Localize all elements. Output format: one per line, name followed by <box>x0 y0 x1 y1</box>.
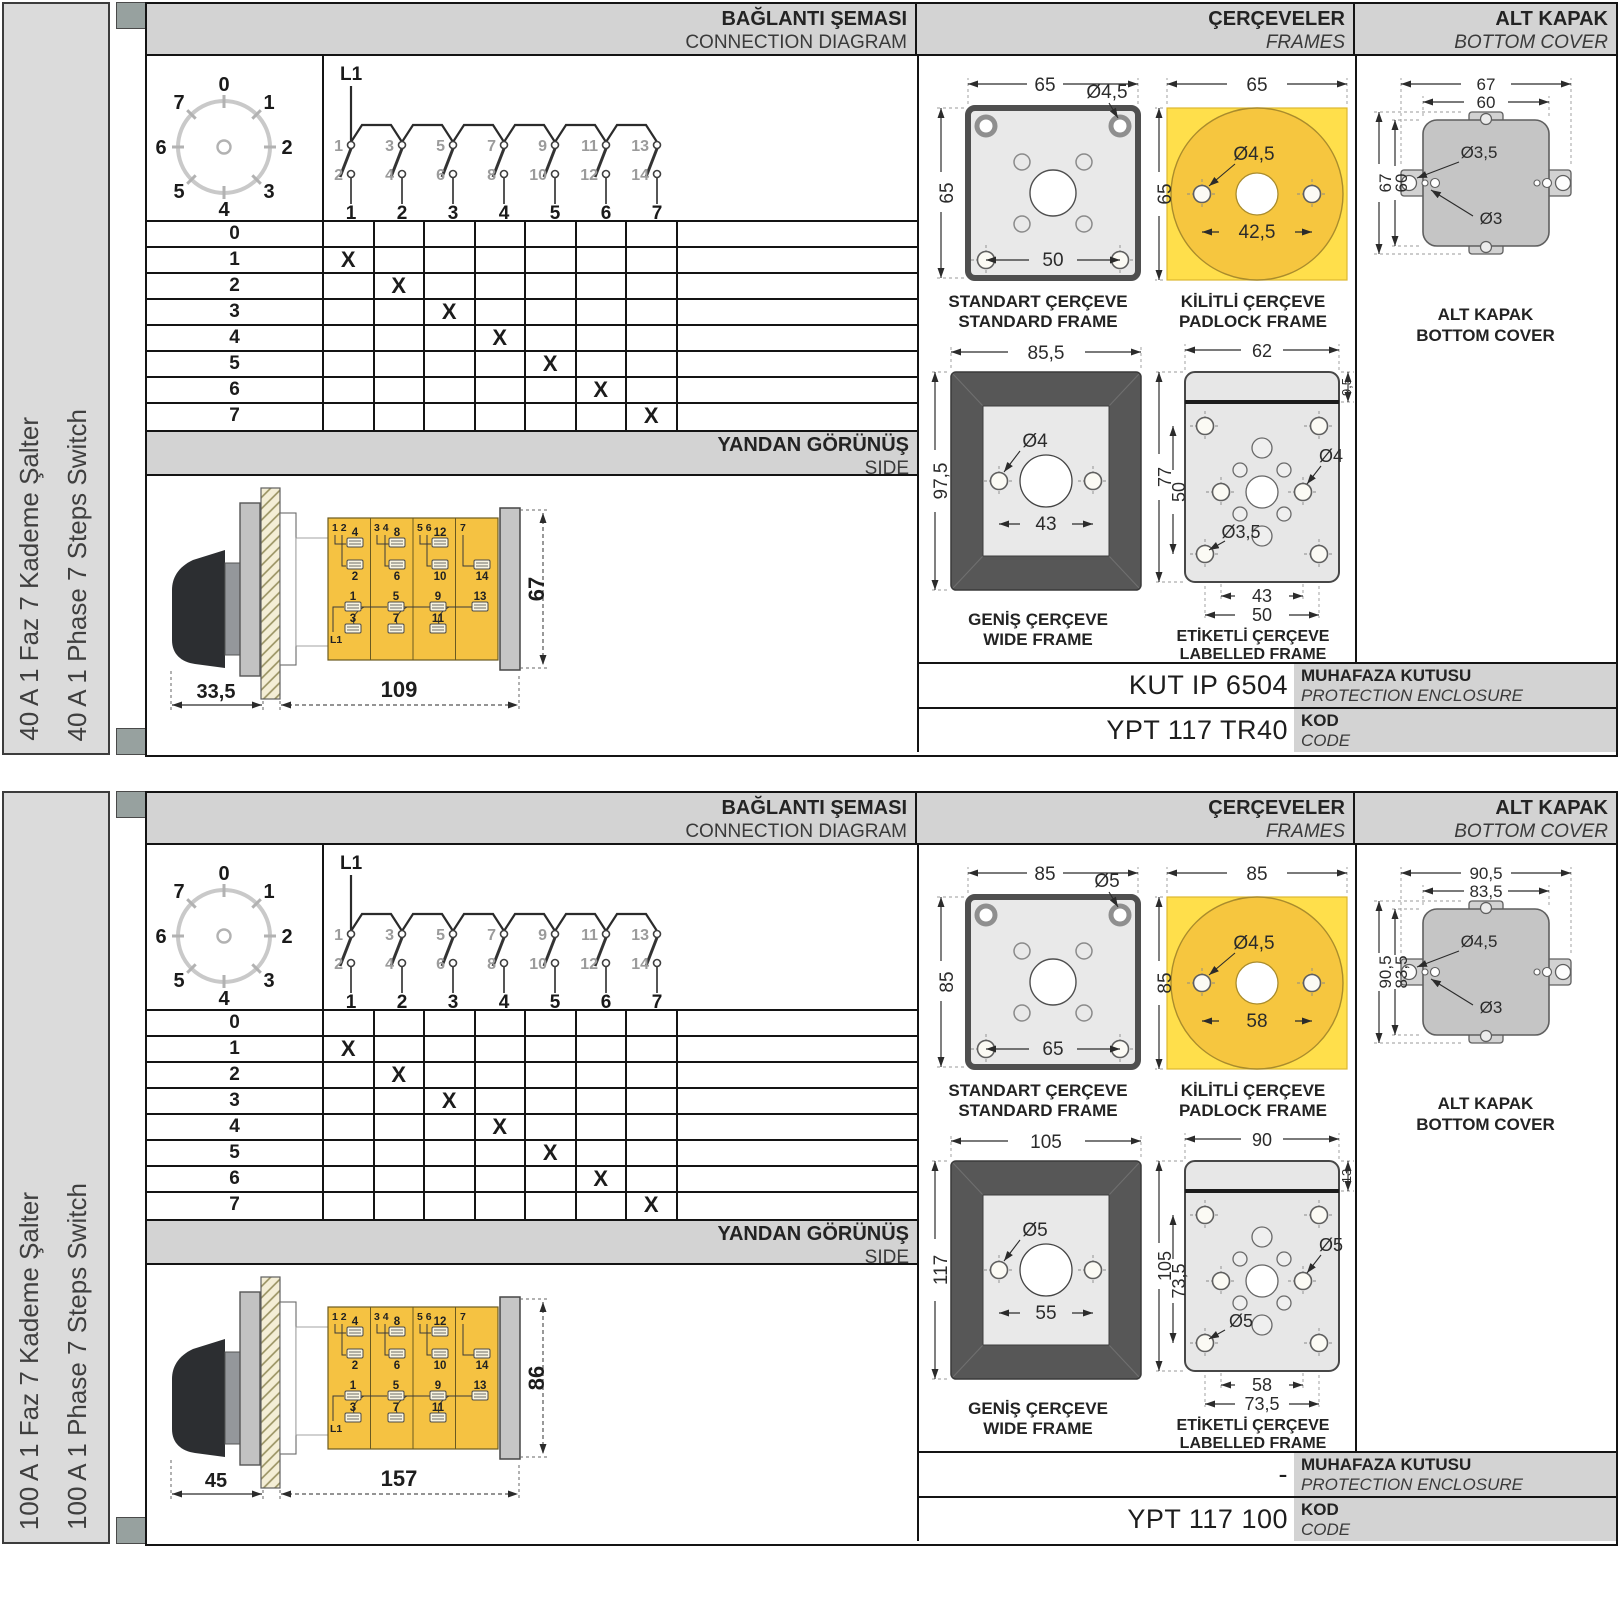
header-cover-tr: ALT KAPAK <box>1355 7 1608 31</box>
side-view-drawing: 1 2 3 4 5 6 7 L1 4 8 12 2 6 10 14 1 5 9 <box>153 1269 593 1525</box>
padlock-frame-drawing: 65 65 Ø4,5 42,5 <box>1151 60 1355 288</box>
bottom-cover-drawing: 90,5 83,5 90,5 83,5 Ø4,5 Ø3 <box>1361 853 1611 1091</box>
dim-cover-hole-tab: Ø4,5 <box>1461 932 1498 951</box>
dim-frame-width: 105 <box>1030 1132 1062 1153</box>
term-label: 1 <box>350 1380 357 1392</box>
product-section: 100 A 1 Faz 7 Kademe Şalter 100 A 1 Phas… <box>0 789 1623 1546</box>
col-top-label-4: 7 <box>460 1311 466 1323</box>
terminal-top-1: 1 <box>334 138 343 155</box>
header-frames-en: FRAMES <box>917 820 1345 843</box>
panel-plate-hatched <box>261 1277 280 1488</box>
dial-pos-0: 0 <box>218 74 229 96</box>
labelled-frame-label-tr: ETİKETLİ ÇERÇEVE <box>1149 628 1357 646</box>
padlock-frame-label: KİLİTLİ ÇERÇEVE PADLOCK FRAME <box>1151 292 1355 332</box>
dim-frame-height: 65 <box>937 182 958 203</box>
product-title-turkish: 100 A 1 Faz 7 Kademe Şalter <box>14 1192 45 1530</box>
enclosure-row: - MUHAFAZA KUTUSU PROTECTION ENCLOSURE <box>919 1451 1616 1496</box>
matrix-row: 0 <box>147 1011 917 1037</box>
header-connection-tr: BAĞLANTI ŞEMASI <box>147 796 907 820</box>
side-view-band-tr: YANDAN GÖRÜNÜŞ <box>147 433 909 457</box>
switch-handle <box>172 550 225 668</box>
dim-frame-width: 65 <box>1034 75 1055 96</box>
terminal-bottom-12: 12 <box>580 167 598 184</box>
enclosure-label-tr: MUHAFAZA KUTUSU <box>1301 666 1616 686</box>
matrix-row-label: 7 <box>147 404 324 430</box>
code-label-en: CODE <box>1301 1520 1616 1539</box>
term-label: 13 <box>474 1380 487 1392</box>
matrix-row-label: 2 <box>147 1063 324 1087</box>
supply-label: L1 <box>340 853 363 874</box>
dial-pos-4: 4 <box>218 988 230 1007</box>
matrix-x-mark: X <box>476 1115 527 1139</box>
dial-pos-5: 5 <box>173 970 184 992</box>
terminal-top-5: 5 <box>436 138 445 155</box>
matrix-x-mark: X <box>375 274 426 298</box>
dim-frame-hole-left: Ø3,5 <box>1221 522 1260 542</box>
dim-frame-height: 65 <box>1155 183 1176 204</box>
dim-frame-spacing: 43 <box>1035 514 1056 535</box>
dim-frame-inner-height: 50 <box>1169 482 1189 502</box>
datasheet-panel: BAĞLANTI ŞEMASI CONNECTION DIAGRAM ÇERÇE… <box>145 2 1618 757</box>
dim-frame-hole: Ø4,5 <box>1086 82 1127 103</box>
product-section: 40 A 1 Faz 7 Kademe Şalter 40 A 1 Phase … <box>0 0 1623 757</box>
matrix-row: 1X <box>147 248 917 274</box>
header-bottom-cover: ALT KAPAK BOTTOM COVER <box>1355 793 1616 845</box>
mounting-plate <box>240 503 260 676</box>
matrix-row: 6X <box>147 1167 917 1193</box>
dim-cover-inner-h: 83,5 <box>1392 955 1411 988</box>
col-top-label-1: 1 2 <box>332 522 347 534</box>
standard-frame-drawing: 85 Ø5 85 65 <box>923 849 1153 1077</box>
term-label: 4 <box>352 1316 359 1328</box>
term-label: 9 <box>435 591 441 603</box>
output-4: 4 <box>499 992 510 1009</box>
contact-schematic-cell: L1 <box>324 845 917 1009</box>
term-label: 2 <box>352 1360 358 1372</box>
dim-frame-width: 65 <box>1246 75 1267 96</box>
matrix-row: 5X <box>147 1141 917 1167</box>
term-label: 1 <box>350 591 357 603</box>
code-row: YPT 117 TR40 KOD CODE <box>919 707 1616 752</box>
matrix-row-label: 1 <box>147 1037 324 1061</box>
terminal-bottom-8: 8 <box>487 956 496 973</box>
term-label: 12 <box>434 1316 447 1328</box>
matrix-x-mark: X <box>425 300 476 324</box>
matrix-row-label: 4 <box>147 326 324 350</box>
terminal-top-1: 1 <box>334 927 343 944</box>
term-label: 7 <box>393 1402 399 1414</box>
terminal-top-11: 11 <box>581 138 598 155</box>
output-3: 3 <box>448 992 459 1009</box>
product-title-turkish: 40 A 1 Faz 7 Kademe Şalter <box>14 417 45 741</box>
bottom-cover-label: ALT KAPAK BOTTOM COVER <box>1355 1093 1616 1135</box>
side-view-band-en: SIDE <box>147 1246 909 1269</box>
matrix-x-mark: X <box>526 352 577 376</box>
header-connection-diagram: BAĞLANTI ŞEMASI CONNECTION DIAGRAM <box>147 4 917 56</box>
side-view-band: YANDAN GÖRÜNÜŞ SIDE <box>147 1219 917 1265</box>
terminal-bottom-6: 6 <box>436 167 445 184</box>
dim-frame-spacing-outer: 73,5 <box>1244 1394 1279 1414</box>
dial-cell: 0 1 2 3 4 5 6 7 <box>147 845 324 1009</box>
enclosure-label: MUHAFAZA KUTUSU PROTECTION ENCLOSURE <box>1294 1453 1616 1496</box>
terminal-top-13: 13 <box>631 927 649 944</box>
matrix-row: 4X <box>147 326 917 352</box>
padlock-frame-label-en: PADLOCK FRAME <box>1151 1101 1355 1121</box>
product-title-sidebar: 100 A 1 Faz 7 Kademe Şalter 100 A 1 Phas… <box>2 791 110 1544</box>
header-cover-en: BOTTOM COVER <box>1355 31 1608 54</box>
terminal-bottom-14: 14 <box>631 167 649 184</box>
term-label: 10 <box>434 1360 447 1372</box>
register-mark-bottom <box>116 1517 148 1544</box>
terminal-bottom-10: 10 <box>529 167 547 184</box>
matrix-row: 2X <box>147 274 917 300</box>
dim-frame-spacing: 50 <box>1042 250 1063 271</box>
dim-frame-width: 85,5 <box>1028 343 1065 364</box>
divider-connection-frames <box>917 845 919 1541</box>
dim-frame-spacing: 42,5 <box>1239 222 1276 243</box>
wide-frame-drawing: 105 117 Ø5 55 <box>923 1123 1153 1395</box>
dim-frame-width: 85 <box>1246 864 1267 885</box>
header-cover-tr: ALT KAPAK <box>1355 796 1608 820</box>
dial-pos-2: 2 <box>281 137 292 159</box>
term-label: 11 <box>432 1402 445 1414</box>
matrix-x-mark: X <box>577 1167 628 1191</box>
terminal-bottom-4: 4 <box>385 167 394 184</box>
enclosure-label-en: PROTECTION ENCLOSURE <box>1301 686 1616 705</box>
code-label-tr: KOD <box>1301 711 1616 731</box>
header-connection-tr: BAĞLANTI ŞEMASI <box>147 7 907 31</box>
term-label: 14 <box>476 1360 489 1372</box>
matrix-x-mark: X <box>375 1063 426 1087</box>
dim-frame-width: 62 <box>1252 341 1272 361</box>
output-2: 2 <box>397 992 408 1009</box>
col-top-label-1: 1 2 <box>332 1311 347 1323</box>
body-supply-label: L1 <box>330 1423 342 1435</box>
col-top-label-2: 3 4 <box>374 1311 389 1323</box>
side-view-band-en: SIDE <box>147 457 909 480</box>
matrix-row: 3X <box>147 300 917 326</box>
dial-pos-4: 4 <box>218 199 230 218</box>
rotary-dial-drawing: 0 1 2 3 4 5 6 7 <box>147 845 322 1007</box>
term-label: 5 <box>393 591 400 603</box>
header-frames-en: FRAMES <box>917 31 1345 54</box>
padlock-frame-label-en: PADLOCK FRAME <box>1151 312 1355 332</box>
labelled-frame-label-tr: ETİKETLİ ÇERÇEVE <box>1149 1417 1357 1435</box>
dim-frame-spacing: 58 <box>1246 1011 1267 1032</box>
dial-pos-6: 6 <box>155 926 166 948</box>
dim-frame-hole-left: Ø5 <box>1229 1311 1253 1331</box>
standard-frame-label: STANDART ÇERÇEVE STANDARD FRAME <box>923 292 1153 332</box>
standard-frame-label-en: STANDARD FRAME <box>923 1101 1153 1121</box>
dim-frame-spacing: 65 <box>1042 1039 1063 1060</box>
output-5: 5 <box>550 203 561 220</box>
code-value: YPT 117 TR40 <box>919 709 1294 752</box>
matrix-row-label: 0 <box>147 222 324 246</box>
dim-handle-depth: 45 <box>205 1470 227 1492</box>
matrix-row-label: 3 <box>147 1089 324 1113</box>
header-frames-tr: ÇERÇEVELER <box>917 7 1345 31</box>
enclosure-value: KUT IP 6504 <box>919 664 1294 707</box>
output-3: 3 <box>448 203 459 220</box>
output-7: 7 <box>652 203 663 220</box>
dial-pos-0: 0 <box>218 863 229 885</box>
terminal-bottom-6: 6 <box>436 956 445 973</box>
header-cover-en: BOTTOM COVER <box>1355 820 1608 843</box>
side-view-band-tr: YANDAN GÖRÜNÜŞ <box>147 1222 909 1246</box>
terminal-bottom-12: 12 <box>580 956 598 973</box>
matrix-row-label: 2 <box>147 274 324 298</box>
terminal-top-11: 11 <box>581 927 598 944</box>
standard-frame-label: STANDART ÇERÇEVE STANDARD FRAME <box>923 1081 1153 1121</box>
dim-frame-spacing-outer: 50 <box>1252 605 1272 625</box>
wide-frame-label-tr: GENİŞ ÇERÇEVE <box>923 1399 1153 1419</box>
matrix-row: 3X <box>147 1089 917 1115</box>
header-connection-en: CONNECTION DIAGRAM <box>147 820 907 843</box>
terminal-bottom-10: 10 <box>529 956 547 973</box>
contact-schematic-cell: L1 <box>324 56 917 220</box>
dim-body-height: 67 <box>524 577 549 601</box>
term-label: 3 <box>350 1402 356 1414</box>
dim-frame-width: 85 <box>1034 864 1055 885</box>
standard-frame-label-en: STANDARD FRAME <box>923 312 1153 332</box>
matrix-x-mark: X <box>324 1037 375 1061</box>
dim-frame-inner-height: 73,5 <box>1169 1263 1189 1298</box>
dim-frame-width: 90 <box>1252 1130 1272 1150</box>
wide-frame-label-en: WIDE FRAME <box>923 630 1153 650</box>
term-label: 13 <box>474 591 487 603</box>
matrix-x-mark: X <box>476 326 527 350</box>
end-cap <box>500 508 520 670</box>
term-label: 8 <box>394 527 401 539</box>
wide-frame-drawing: 85,5 97,5 Ø4 43 <box>923 334 1153 606</box>
bottom-cover-label-en: BOTTOM COVER <box>1355 325 1616 346</box>
dim-body-length: 109 <box>381 677 418 702</box>
side-view-cell: 1 2 3 4 5 6 7 L1 4 8 12 2 6 10 14 1 5 9 <box>153 1269 593 1530</box>
dim-cover-hole-tab: Ø3,5 <box>1461 143 1498 162</box>
dim-frame-strip: 13 <box>1339 1169 1354 1183</box>
body-supply-label: L1 <box>330 634 342 646</box>
matrix-row-label: 4 <box>147 1115 324 1139</box>
side-view-cell: 1 2 3 4 5 6 7 L1 4 8 12 2 6 10 14 1 5 9 <box>153 480 593 741</box>
padlock-frame-label: KİLİTLİ ÇERÇEVE PADLOCK FRAME <box>1151 1081 1355 1121</box>
standard-frame-drawing: 65 Ø4,5 65 50 <box>923 60 1153 288</box>
code-label: KOD CODE <box>1294 709 1616 752</box>
terminal-bottom-2: 2 <box>334 167 343 184</box>
matrix-row-label: 5 <box>147 352 324 376</box>
header-frames-tr: ÇERÇEVELER <box>917 796 1345 820</box>
term-label: 3 <box>350 613 356 625</box>
panel-plate-hatched <box>261 488 280 699</box>
term-label: 4 <box>352 527 359 539</box>
output-2: 2 <box>397 203 408 220</box>
register-mark-top <box>116 791 148 818</box>
dial-pos-3: 3 <box>263 181 274 203</box>
terminal-top-7: 7 <box>487 927 496 944</box>
dim-cover-hole-small: Ø3 <box>1480 998 1503 1017</box>
matrix-row-label: 7 <box>147 1193 324 1219</box>
output-5: 5 <box>550 992 561 1009</box>
matrix-row: 5X <box>147 352 917 378</box>
terminal-top-5: 5 <box>436 927 445 944</box>
matrix-row-label: 3 <box>147 300 324 324</box>
dim-frame-hole: Ø4,5 <box>1233 933 1274 954</box>
mounting-plate <box>240 1292 260 1465</box>
dim-cover-hole-small: Ø3 <box>1480 209 1503 228</box>
dim-frame-spacing-inner: 58 <box>1252 1375 1272 1395</box>
dial-pos-6: 6 <box>155 137 166 159</box>
enclosure-label: MUHAFAZA KUTUSU PROTECTION ENCLOSURE <box>1294 664 1616 707</box>
code-value: YPT 117 100 <box>919 1498 1294 1541</box>
product-title-sidebar: 40 A 1 Faz 7 Kademe Şalter 40 A 1 Phase … <box>2 2 110 755</box>
padlock-frame-label-tr: KİLİTLİ ÇERÇEVE <box>1151 1081 1355 1101</box>
output-4: 4 <box>499 203 510 220</box>
matrix-x-mark: X <box>425 1089 476 1113</box>
terminal-bottom-8: 8 <box>487 167 496 184</box>
contact-schematic-drawing: L1 <box>324 56 917 220</box>
enclosure-label-tr: MUHAFAZA KUTUSU <box>1301 1455 1616 1475</box>
dim-cover-outer-w: 67 <box>1477 75 1496 94</box>
term-label: 11 <box>432 613 445 625</box>
header-connection-en: CONNECTION DIAGRAM <box>147 31 907 54</box>
dial-pos-1: 1 <box>263 92 274 114</box>
output-6: 6 <box>601 992 612 1009</box>
padlock-frame-drawing: 85 85 Ø4,5 58 <box>1151 849 1355 1077</box>
output-7: 7 <box>652 992 663 1009</box>
header-bottom-cover: ALT KAPAK BOTTOM COVER <box>1355 4 1616 56</box>
dial-pos-3: 3 <box>263 970 274 992</box>
dim-body-length: 157 <box>381 1466 418 1491</box>
col-top-label-3: 5 6 <box>417 1311 432 1323</box>
code-label-en: CODE <box>1301 731 1616 750</box>
term-label: 10 <box>434 571 447 583</box>
matrix-row: 4X <box>147 1115 917 1141</box>
matrix-row: 7X <box>147 1193 917 1219</box>
enclosure-value: - <box>919 1453 1294 1496</box>
dim-frame-height: 85 <box>1155 972 1176 993</box>
contact-schematic-drawing: L1 <box>324 845 917 1009</box>
enclosure-row: KUT IP 6504 MUHAFAZA KUTUSU PROTECTION E… <box>919 662 1616 707</box>
code-row: YPT 117 100 KOD CODE <box>919 1496 1616 1541</box>
matrix-x-mark: X <box>526 1141 577 1165</box>
code-label: KOD CODE <box>1294 1498 1616 1541</box>
matrix-row-label: 5 <box>147 1141 324 1165</box>
register-mark-top <box>116 2 148 29</box>
dim-cover-inner-h: 60 <box>1392 174 1411 193</box>
labelled-frame-label: ETİKETLİ ÇERÇEVE LABELLED FRAME <box>1149 628 1357 664</box>
terminal-top-7: 7 <box>487 138 496 155</box>
term-label: 6 <box>394 1360 400 1372</box>
dial-pos-5: 5 <box>173 181 184 203</box>
dim-frame-spacing: 55 <box>1035 1303 1056 1324</box>
wide-frame-label: GENİŞ ÇERÇEVE WIDE FRAME <box>923 610 1153 650</box>
dim-frame-height: 117 <box>931 1255 952 1285</box>
wide-frame-label-en: WIDE FRAME <box>923 1419 1153 1439</box>
dial-pos-1: 1 <box>263 881 274 903</box>
dial-pos-7: 7 <box>173 92 184 114</box>
term-label: 2 <box>352 571 358 583</box>
dial-cell: 0 1 2 3 4 5 6 7 <box>147 56 324 220</box>
term-label: 9 <box>435 1380 441 1392</box>
term-label: 8 <box>394 1316 401 1328</box>
matrix-row: 2X <box>147 1063 917 1089</box>
dim-frame-height: 85 <box>937 971 958 992</box>
term-label: 6 <box>394 571 400 583</box>
dim-frame-hole: Ø5 <box>1094 871 1119 892</box>
wide-frame-label-tr: GENİŞ ÇERÇEVE <box>923 610 1153 630</box>
bottom-cover-drawing: 67 60 67 60 Ø3,5 Ø3 <box>1361 64 1611 302</box>
matrix-row-label: 6 <box>147 1167 324 1191</box>
dim-frame-strip: 9,5 <box>1339 378 1354 396</box>
terminal-top-3: 3 <box>385 138 394 155</box>
bottom-cover-label-tr: ALT KAPAK <box>1355 1093 1616 1114</box>
matrix-row: 7X <box>147 404 917 430</box>
col-top-label-2: 3 4 <box>374 522 389 534</box>
side-view-band: YANDAN GÖRÜNÜŞ SIDE <box>147 430 917 476</box>
terminal-bottom-14: 14 <box>631 956 649 973</box>
dim-frame-hole-right: Ø4 <box>1319 446 1343 466</box>
matrix-x-mark: X <box>324 248 375 272</box>
catalog-page: 40 A 1 Faz 7 Kademe Şalter 40 A 1 Phase … <box>0 0 1623 1546</box>
term-label: 12 <box>434 527 447 539</box>
labelled-frame-drawing: 62 9,5 77 50 Ø4 Ø3,5 43 50 <box>1149 334 1357 626</box>
matrix-row: 0 <box>147 222 917 248</box>
rotary-dial-drawing: 0 1 2 3 4 5 6 7 <box>147 56 322 218</box>
dim-frame-hole: Ø5 <box>1022 1220 1047 1241</box>
dim-frame-spacing-inner: 43 <box>1252 586 1272 606</box>
terminal-bottom-4: 4 <box>385 956 394 973</box>
code-label-tr: KOD <box>1301 1500 1616 1520</box>
datasheet-panel: BAĞLANTI ŞEMASI CONNECTION DIAGRAM ÇERÇE… <box>145 791 1618 1546</box>
output-1: 1 <box>346 992 357 1009</box>
output-6: 6 <box>601 203 612 220</box>
terminal-top-9: 9 <box>538 927 547 944</box>
col-top-label-3: 5 6 <box>417 522 432 534</box>
matrix-row: 6X <box>147 378 917 404</box>
dim-handle-depth: 33,5 <box>197 681 236 703</box>
labelled-frame-label: ETİKETLİ ÇERÇEVE LABELLED FRAME <box>1149 1417 1357 1453</box>
matrix-x-mark: X <box>627 1193 678 1219</box>
terminal-top-13: 13 <box>631 138 649 155</box>
term-label: 14 <box>476 571 489 583</box>
switching-matrix-table: 0 1X 2X 3X 4X 5X 6X 7X <box>147 220 917 430</box>
matrix-x-mark: X <box>577 378 628 402</box>
bottom-cover-label-en: BOTTOM COVER <box>1355 1114 1616 1135</box>
term-label: 5 <box>393 1380 400 1392</box>
dim-cover-outer-w: 90,5 <box>1469 864 1502 883</box>
divider-connection-frames <box>917 56 919 752</box>
terminal-bottom-2: 2 <box>334 956 343 973</box>
padlock-frame-label-tr: KİLİTLİ ÇERÇEVE <box>1151 292 1355 312</box>
standard-frame-label-tr: STANDART ÇERÇEVE <box>923 1081 1153 1101</box>
header-connection-diagram: BAĞLANTI ŞEMASI CONNECTION DIAGRAM <box>147 793 917 845</box>
term-label: 7 <box>393 613 399 625</box>
dim-frame-hole: Ø4 <box>1022 431 1048 452</box>
enclosure-label-en: PROTECTION ENCLOSURE <box>1301 1475 1616 1494</box>
matrix-row-label: 6 <box>147 378 324 402</box>
dial-pos-2: 2 <box>281 926 292 948</box>
output-1: 1 <box>346 203 357 220</box>
switching-matrix-table: 0 1X 2X 3X 4X 5X 6X 7X <box>147 1009 917 1219</box>
dim-body-height: 86 <box>524 1366 549 1390</box>
dim-frame-hole: Ø4,5 <box>1233 144 1274 165</box>
dim-frame-hole-right: Ø5 <box>1319 1235 1343 1255</box>
terminal-top-3: 3 <box>385 927 394 944</box>
register-mark-bottom <box>116 728 148 755</box>
labelled-frame-drawing: 90 13 105 73,5 Ø5 Ø5 58 73,5 <box>1149 1123 1357 1415</box>
header-frames: ÇERÇEVELER FRAMES <box>917 4 1355 56</box>
col-top-label-4: 7 <box>460 522 466 534</box>
switch-handle <box>172 1339 225 1457</box>
